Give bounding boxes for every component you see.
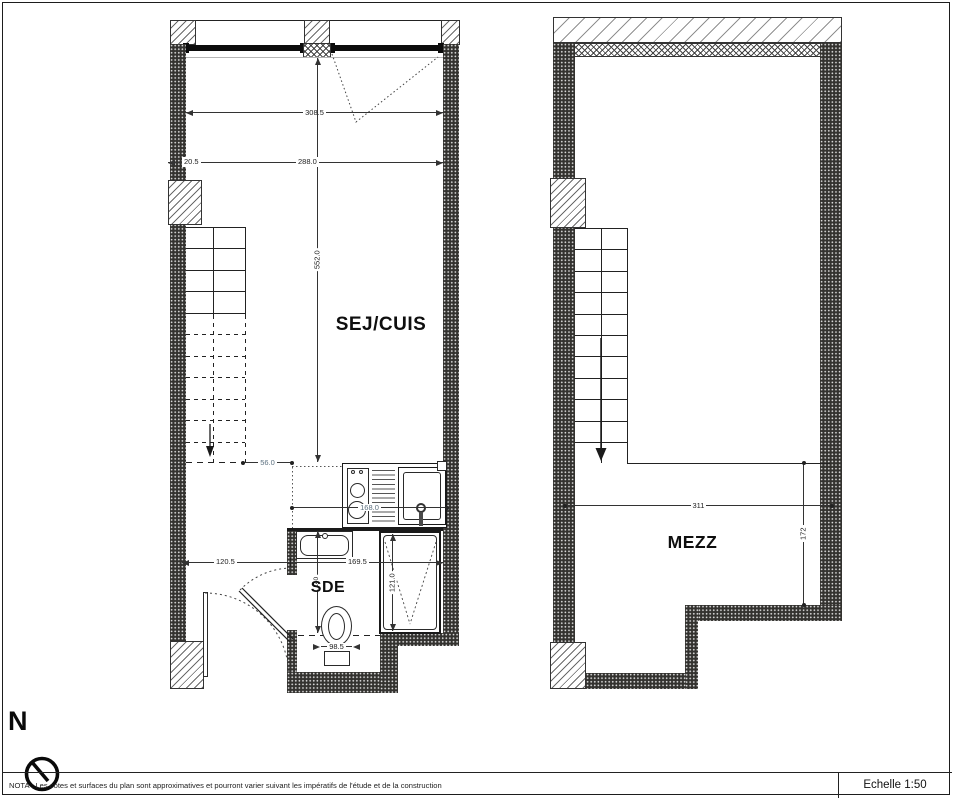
dim-shower-label: 121.0 — [389, 571, 397, 594]
dim-room-length: 552.0 — [317, 58, 318, 462]
scale-label: Echelle 1:50 — [838, 772, 952, 798]
dim-room-length-label: 552.0 — [314, 249, 322, 272]
dim-bath-width-label: 169.5 — [346, 557, 369, 567]
dim-kitchen-label: 168.0 — [358, 504, 381, 512]
nota-text: NOTA : Les cotes et surfaces du plan son… — [9, 781, 442, 790]
dim-total-width: 308.5 — [186, 112, 443, 113]
dim-hall-label: 120.5 — [214, 557, 237, 567]
dim-wc: 98.5 — [321, 646, 352, 647]
dim-shower: 121.0 — [392, 534, 393, 631]
footer-divider-line — [2, 772, 952, 773]
floor-plan-sheet: 308.5 20.5 288.0 552.0 56.0 168.0 120.5 … — [0, 0, 954, 800]
dim-inner-width-label: 288.0 — [296, 157, 319, 167]
room-label-sej-cuis: SEJ/CUIS — [328, 314, 434, 336]
sheet-border — [2, 2, 950, 795]
dim-mezz-depth: 172 — [803, 463, 804, 605]
dim-mezz-edge-label: 56.0 — [258, 459, 277, 467]
dim-mezz-edge: 56.0 — [243, 462, 292, 463]
dim-wc-label: 98.5 — [327, 643, 346, 651]
dim-kitchen: 168.0 — [292, 507, 447, 508]
room-label-mezz: MEZZ — [660, 532, 725, 553]
north-label: N — [8, 706, 28, 737]
dim-mezz-depth-label: 172 — [800, 526, 808, 543]
room-label-sde: SDE — [306, 579, 350, 597]
dim-total-width-label: 308.5 — [303, 109, 326, 117]
dim-tick — [290, 558, 291, 567]
dim-mezz-width-label: 311 — [691, 502, 707, 510]
dim-mezz-width: 311 — [565, 505, 832, 506]
dim-wall-label: 20.5 — [182, 157, 201, 167]
